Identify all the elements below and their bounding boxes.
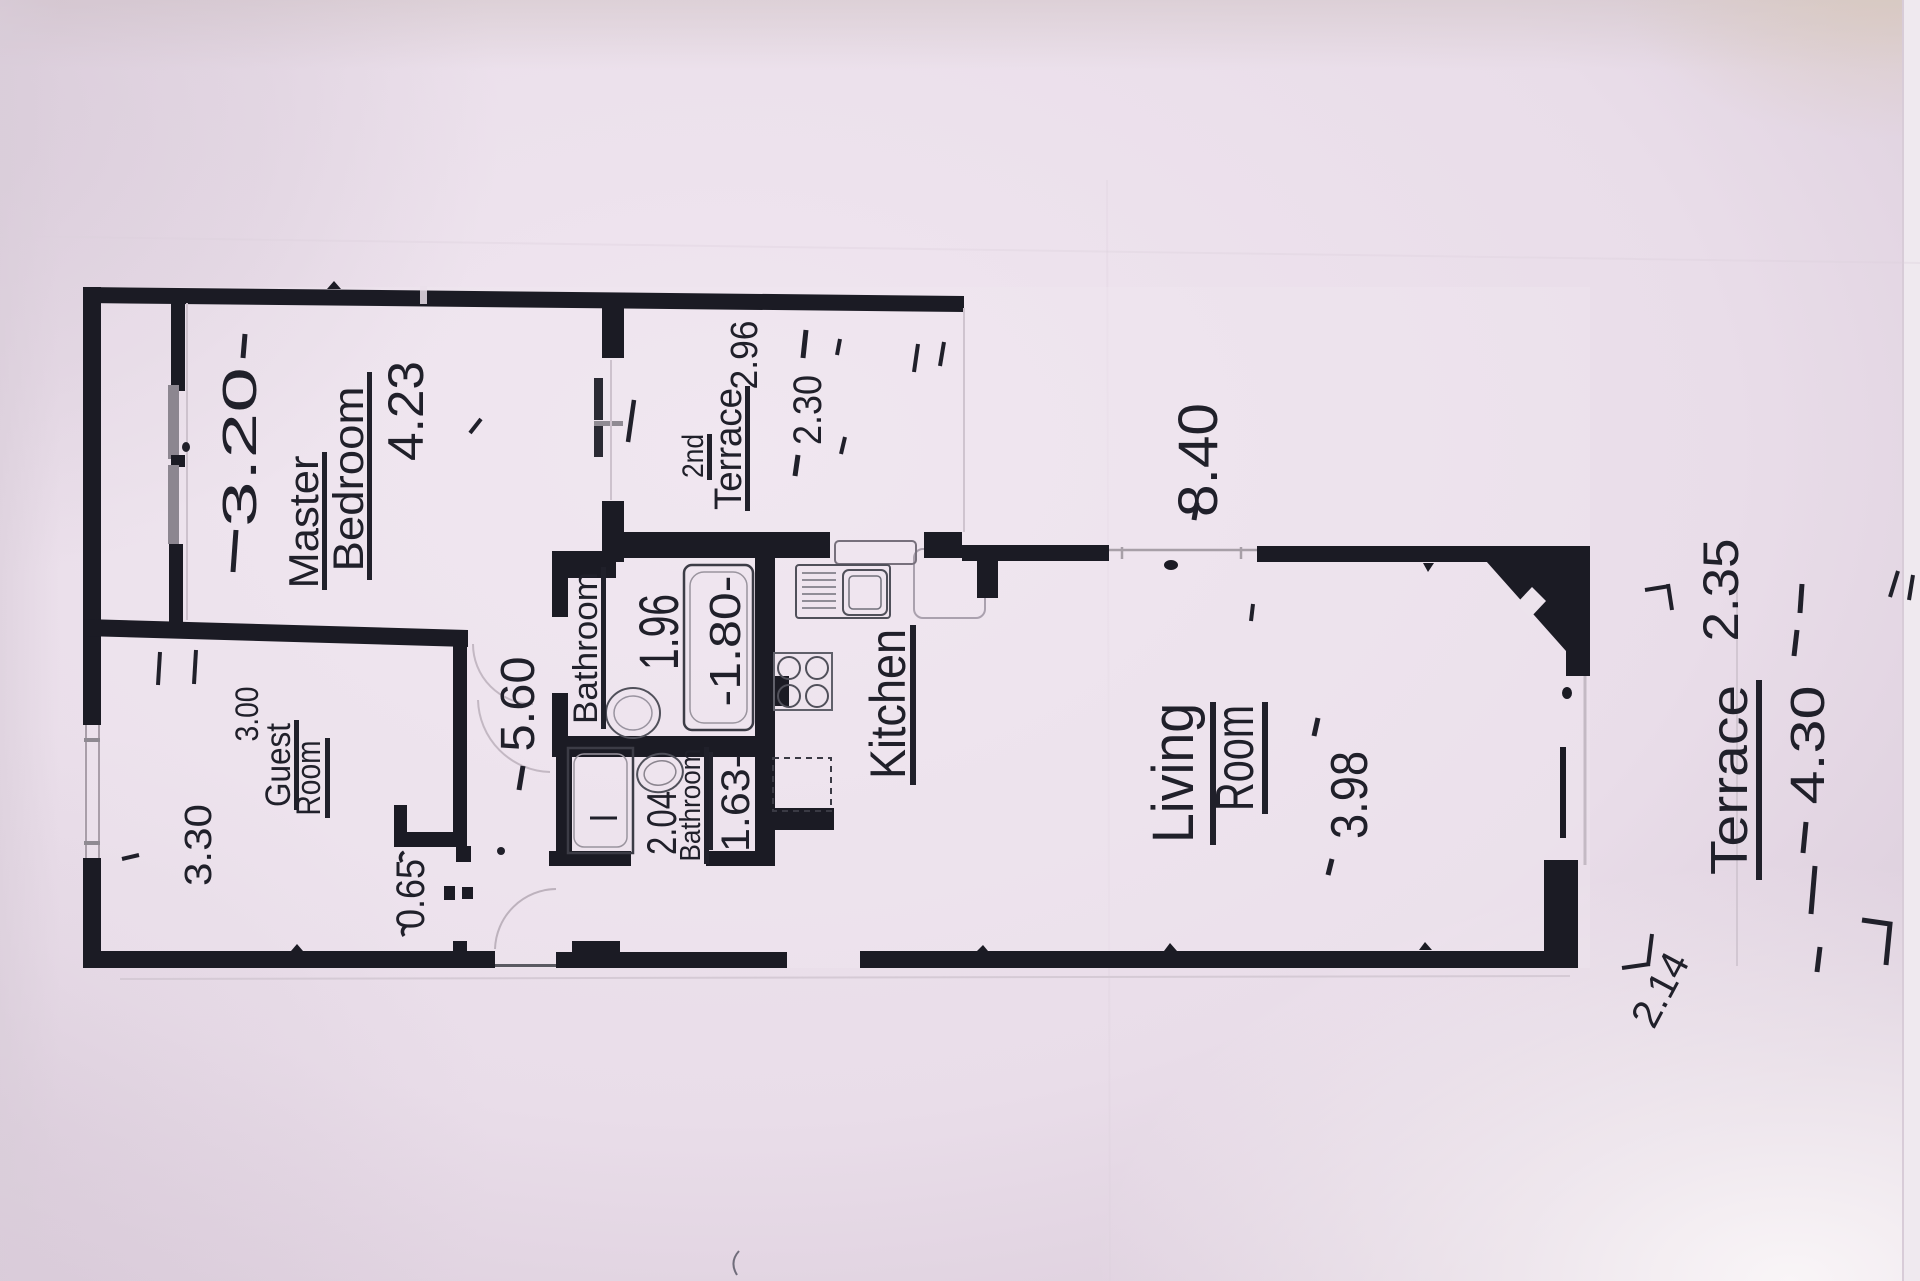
svg-text:Room: Room — [290, 741, 328, 816]
svg-text:Living: Living — [1141, 703, 1206, 843]
svg-text:2.96: 2.96 — [724, 321, 766, 390]
svg-text:3.30: 3.30 — [178, 804, 220, 886]
svg-text:Terrace: Terrace — [1701, 685, 1759, 875]
svg-text:2.35: 2.35 — [1693, 539, 1749, 642]
svg-text:Bedroom: Bedroom — [325, 387, 373, 572]
svg-text:Bathroom: Bathroom — [567, 572, 605, 724]
svg-text:Terrace: Terrace — [708, 388, 750, 510]
svg-text:1.63-: 1.63- — [714, 754, 758, 852]
svg-text:4.30: 4.30 — [1782, 686, 1835, 805]
svg-text:Room: Room — [1205, 705, 1265, 811]
svg-text:Kitchen: Kitchen — [860, 629, 916, 779]
svg-text:5.60: 5.60 — [492, 657, 545, 752]
svg-text:-1.80-: -1.80- — [701, 576, 750, 707]
svg-text:4.23: 4.23 — [378, 361, 434, 461]
svg-text:3.20: 3.20 — [214, 367, 267, 527]
svg-text:Bathroom: Bathroom — [675, 749, 707, 862]
svg-text:2.30: 2.30 — [786, 375, 830, 445]
svg-text:Master: Master — [280, 455, 327, 588]
svg-text:8.40: 8.40 — [1166, 403, 1229, 517]
svg-text:2nd: 2nd — [677, 434, 710, 478]
svg-text:0.65: 0.65 — [389, 859, 433, 929]
svg-text:3.98: 3.98 — [1321, 751, 1379, 839]
svg-text:1.96: 1.96 — [627, 594, 690, 670]
